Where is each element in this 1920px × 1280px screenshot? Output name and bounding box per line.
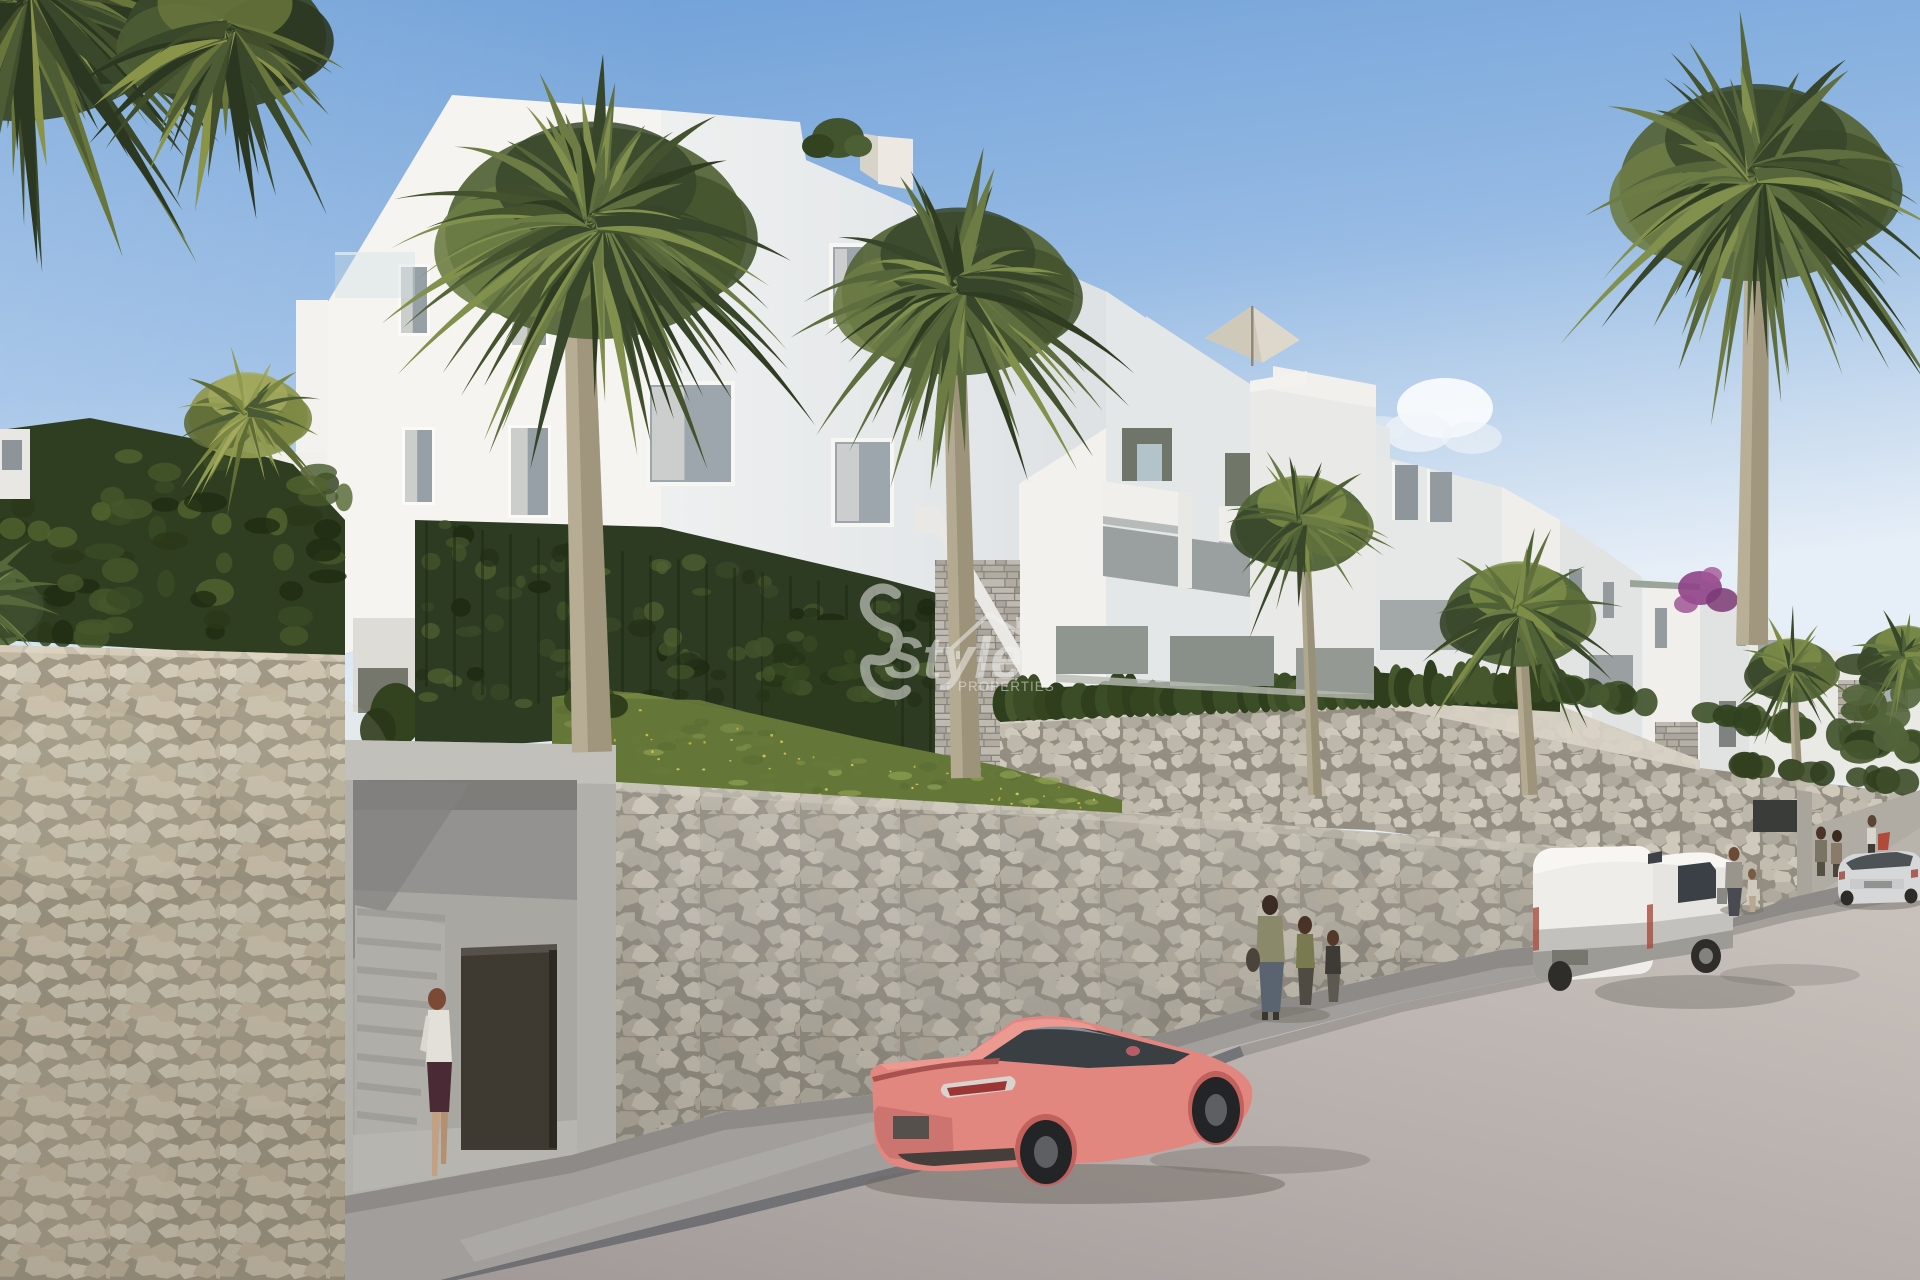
svg-text:PROPERTIES: PROPERTIES — [958, 679, 1055, 694]
